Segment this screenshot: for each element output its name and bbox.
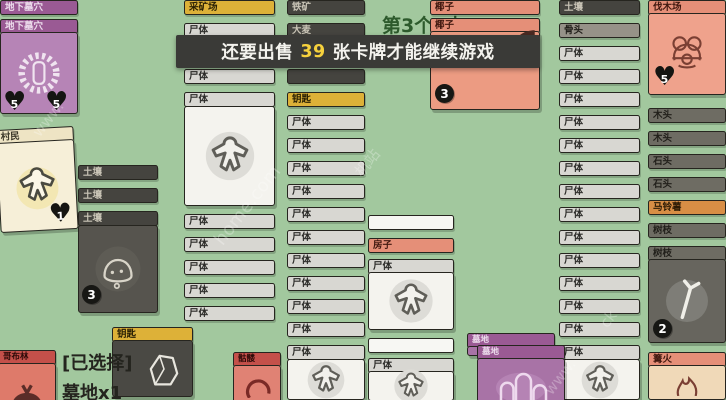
soil-card-body[interactable]: 3 bbox=[78, 225, 158, 313]
card-header[interactable]: 石头 bbox=[648, 177, 726, 192]
count-badge: 3 bbox=[82, 285, 101, 304]
corpse-card-body[interactable] bbox=[368, 272, 454, 330]
card-header[interactable]: 尸体 bbox=[559, 69, 640, 84]
card-header[interactable]: 尸体 bbox=[287, 299, 365, 314]
card-header[interactable]: 尸体 bbox=[287, 161, 365, 176]
corpse-card-body[interactable] bbox=[368, 371, 454, 400]
corpse-stack-d[interactable]: 土壤骨头尸体尸体尸体尸体尸体尸体尸体尸体尸体尸体尸体尸体尸体尸体 bbox=[559, 0, 640, 400]
coconut-card-header[interactable]: 椰子 bbox=[430, 0, 540, 15]
soil-card-header[interactable]: 土壤 bbox=[78, 211, 158, 226]
card-header[interactable]: 树枝 bbox=[648, 223, 726, 238]
house-card-header[interactable]: 房子 bbox=[368, 238, 454, 253]
hp-badge: ♥ 5 bbox=[3, 95, 27, 119]
card-header[interactable]: 马铃薯 bbox=[648, 200, 726, 215]
corpse-card-body[interactable] bbox=[287, 359, 365, 400]
lumber-resource-stack[interactable]: 伐木场 ♥ 5 木头木头石头石头马铃薯树枝 树枝 bbox=[648, 0, 726, 400]
hp-badge: ♥ 5 bbox=[653, 70, 677, 94]
corpse-outline-icon bbox=[385, 275, 437, 327]
card-header[interactable]: 尸体 bbox=[184, 306, 275, 321]
card-header[interactable]: 尸体 bbox=[559, 92, 640, 107]
card-header[interactable]: 木头 bbox=[648, 108, 726, 123]
campfire-card[interactable]: 篝火 bbox=[648, 352, 726, 400]
villager-card[interactable]: 村民 ♥ 1 bbox=[0, 126, 79, 233]
card-header[interactable]: 采矿场 bbox=[184, 0, 275, 15]
skull-card-body[interactable] bbox=[233, 365, 281, 400]
card-header[interactable]: 尸体 bbox=[287, 138, 365, 153]
card-header[interactable]: 尸体 bbox=[184, 92, 275, 107]
card-header[interactable]: 尸体 bbox=[559, 299, 640, 314]
corpse-outline-icon bbox=[304, 358, 348, 400]
card-header[interactable]: 尸体 bbox=[559, 230, 640, 245]
coil-icon bbox=[241, 372, 273, 398]
catacombs-stack[interactable]: 地下墓穴 地下墓穴 ♥ 5 ♥ 5 bbox=[0, 0, 78, 114]
card-header[interactable]: 土壤 bbox=[559, 0, 640, 15]
corpse-card-body[interactable] bbox=[559, 359, 640, 400]
branch-card[interactable]: 树枝 2 bbox=[648, 246, 726, 343]
card-header[interactable]: 尸体 bbox=[559, 184, 640, 199]
sell-cards-banner: 还要出售 39 张卡牌才能继续游戏 bbox=[176, 35, 540, 68]
goblin-card-body[interactable] bbox=[0, 363, 56, 400]
card-header[interactable]: 尸体 bbox=[559, 276, 640, 291]
card-header[interactable]: 尸体 bbox=[559, 253, 640, 268]
selection-item: 墓地x1 bbox=[62, 379, 132, 400]
card-header[interactable]: 尸体 bbox=[184, 237, 275, 252]
count-badge: 2 bbox=[653, 319, 672, 338]
hp-badge: ♥ 1 bbox=[48, 206, 73, 231]
flame-icon bbox=[665, 370, 709, 396]
blank-card-edge[interactable] bbox=[368, 338, 454, 353]
card-header[interactable]: 尸体 bbox=[287, 207, 365, 222]
card-header[interactable]: 钥匙 bbox=[287, 92, 365, 107]
card-header[interactable]: 尸体 bbox=[559, 138, 640, 153]
count-badge: 3 bbox=[435, 84, 454, 103]
selection-overlay: [已选择] 墓地x1 bbox=[62, 349, 132, 400]
villager-card-body[interactable]: ♥ 1 bbox=[0, 139, 79, 233]
banner-text-suffix: 张卡牌才能继续游戏 bbox=[333, 39, 495, 64]
gravestones-icon bbox=[491, 364, 551, 400]
card-header[interactable]: 骨头 bbox=[559, 23, 640, 38]
catacombs-card-header[interactable]: 地下墓穴 bbox=[0, 0, 78, 15]
soil-stack[interactable]: 土壤土壤土壤 3 bbox=[78, 165, 158, 313]
card-header[interactable]: 尸体 bbox=[559, 207, 640, 222]
card-header[interactable]: 尸体 bbox=[287, 230, 365, 245]
card-header[interactable]: 铁矿 bbox=[287, 0, 365, 15]
corpse-outline-icon bbox=[391, 366, 431, 400]
banner-count: 39 bbox=[300, 42, 325, 62]
catacombs-card-body[interactable]: ♥ 5 ♥ 5 bbox=[0, 32, 78, 114]
house-corpse-stack[interactable]: 房子 尸体 尸体 bbox=[368, 215, 454, 400]
goblin-icon bbox=[5, 381, 49, 400]
corpse-outline-icon bbox=[578, 358, 622, 400]
card-header[interactable]: 尸体 bbox=[184, 69, 275, 84]
campfire-card-body[interactable] bbox=[648, 365, 726, 400]
skull-card[interactable]: 骷髅 bbox=[233, 352, 281, 400]
soil-card-header[interactable]: 土壤 bbox=[78, 188, 158, 203]
banner-text-prefix: 还要出售 bbox=[221, 39, 293, 64]
game-board: 第3个“木 地下墓穴 地下墓穴 ♥ 5 ♥ 5 村民 bbox=[0, 0, 726, 400]
card-header[interactable]: 尸体 bbox=[184, 283, 275, 298]
card-header[interactable]: 尸体 bbox=[559, 322, 640, 337]
card-header[interactable]: 尸体 bbox=[184, 260, 275, 275]
card-header[interactable] bbox=[287, 69, 365, 84]
goblin-card[interactable]: 哥布林 bbox=[0, 350, 56, 400]
card-header[interactable]: 尸体 bbox=[559, 115, 640, 130]
card-header[interactable]: 石头 bbox=[648, 154, 726, 169]
selection-label: [已选择] bbox=[62, 349, 132, 379]
rock-icon bbox=[142, 347, 186, 391]
branch-card-body[interactable]: 2 bbox=[648, 259, 726, 343]
card-header[interactable]: 尸体 bbox=[287, 115, 365, 130]
graveyard-card-body[interactable] bbox=[477, 358, 565, 400]
corpse-outline-icon bbox=[201, 127, 259, 185]
lumber-camp-card[interactable]: 伐木场 ♥ 5 bbox=[648, 0, 726, 95]
card-header[interactable]: 尸体 bbox=[287, 322, 365, 337]
lumber-camp-card-body[interactable]: ♥ 5 bbox=[648, 13, 726, 95]
catacombs-card[interactable]: 地下墓穴 ♥ 5 ♥ 5 bbox=[0, 19, 78, 114]
card-header[interactable]: 木头 bbox=[648, 131, 726, 146]
card-header[interactable]: 尸体 bbox=[559, 161, 640, 176]
graveyard-card[interactable]: 墓地 bbox=[477, 345, 565, 400]
hp-badge: ♥ 5 bbox=[45, 95, 69, 119]
card-header[interactable]: 尸体 bbox=[559, 46, 640, 61]
card-header[interactable]: 尸体 bbox=[287, 276, 365, 291]
card-header[interactable]: 尸体 bbox=[184, 214, 275, 229]
card-header[interactable]: 尸体 bbox=[287, 184, 365, 199]
card-header[interactable]: 尸体 bbox=[287, 253, 365, 268]
soil-card-header[interactable]: 土壤 bbox=[78, 165, 158, 180]
corpse-card-body[interactable] bbox=[184, 106, 275, 206]
blank-card-edge[interactable] bbox=[368, 215, 454, 230]
